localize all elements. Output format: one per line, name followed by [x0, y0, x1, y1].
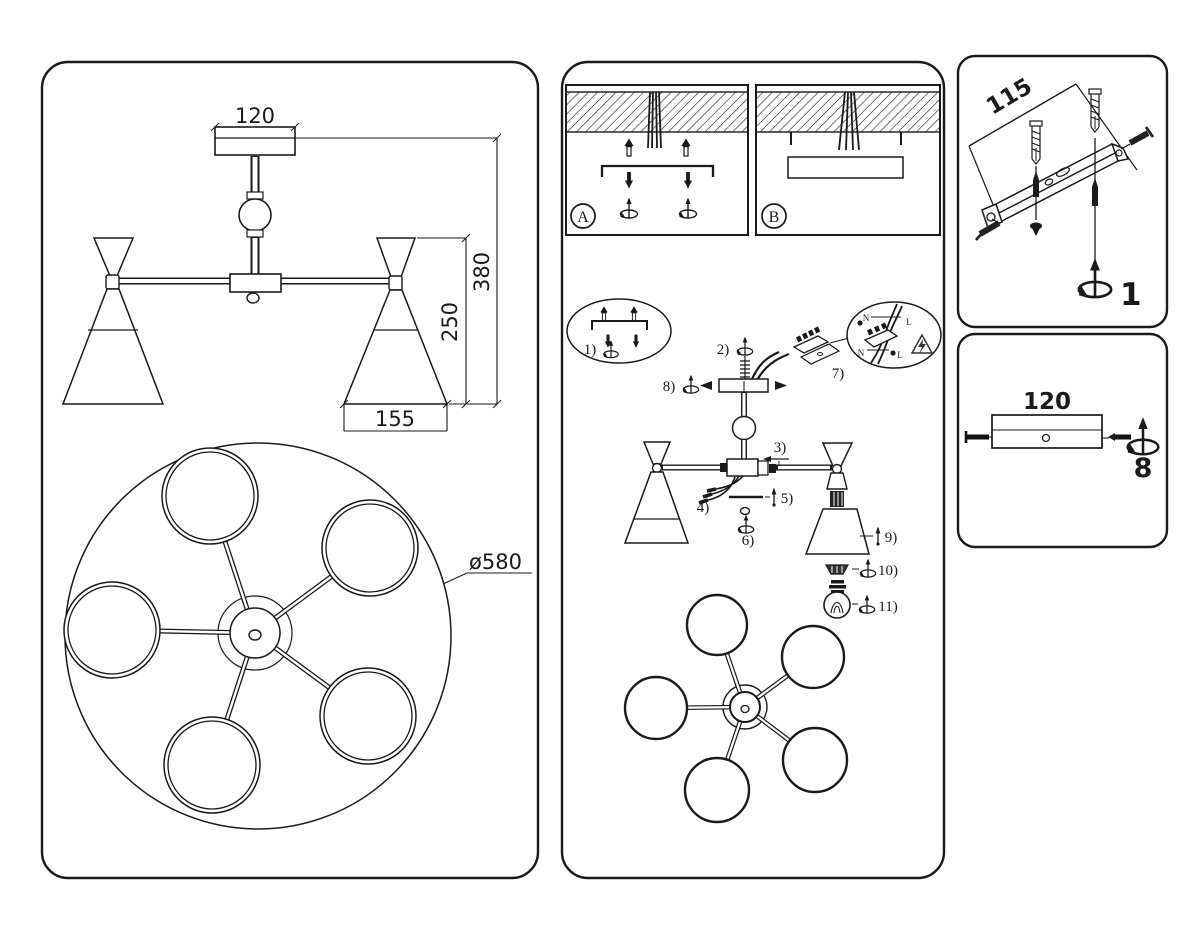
finial	[741, 508, 750, 515]
canopy-dim-label: 120	[1023, 389, 1071, 415]
step-8-label: 8)	[663, 379, 676, 395]
dim-width-label: 120	[235, 104, 275, 128]
bracket-step-label: 1	[1120, 277, 1142, 313]
central-hub	[727, 459, 758, 476]
middle-panel: A B 1)	[562, 62, 944, 878]
central-hub	[230, 274, 281, 292]
terminal-l-bottom-label: L	[897, 350, 903, 360]
label-b: B	[769, 209, 780, 226]
dim-diameter-label: ø580	[469, 550, 522, 574]
canopy-panel: 120 8	[958, 334, 1167, 547]
left-panel: 120 380 250 155	[42, 62, 538, 878]
instruction-sheet: 120 380 250 155	[0, 0, 1200, 933]
step-1-label: 1)	[584, 342, 597, 358]
ceiling-plate	[215, 127, 295, 155]
canopy-drawing	[992, 415, 1102, 448]
label-a: A	[577, 209, 589, 226]
canopy-b	[788, 157, 903, 178]
step-5-label: 5)	[781, 491, 794, 507]
ball-joint	[239, 199, 271, 231]
mounting-option-a: A	[566, 85, 748, 235]
step-3-label: 3)	[774, 440, 787, 456]
arm-connector	[758, 461, 768, 475]
mounting-option-b: B	[756, 85, 940, 235]
hub-finial	[247, 293, 259, 303]
step-11-label: 11)	[878, 599, 897, 615]
canopy-step-label: 8	[1134, 453, 1153, 484]
step-10-label: 10)	[878, 563, 898, 579]
instruction-drawing: 120 380 250 155	[0, 0, 1200, 933]
step-9-label: 9)	[885, 530, 898, 546]
ball-joint	[733, 417, 756, 440]
dim-shade-height-label: 250	[438, 302, 462, 342]
step-2-label: 2)	[717, 342, 730, 358]
terminal-n-top-label: N	[863, 313, 870, 323]
dim-shade-width-label: 155	[375, 407, 415, 431]
bracket-panel: 115	[958, 56, 1167, 327]
terminal-l-top-label: L	[906, 317, 912, 327]
step-7-label: 7)	[832, 366, 845, 382]
left-panel-border	[42, 62, 538, 878]
wiring-detail-bubble: N L N L	[847, 302, 941, 368]
step-6-label: 6)	[742, 533, 755, 549]
step-4-label: 4)	[697, 500, 710, 516]
dim-height-label: 380	[470, 252, 494, 292]
terminal-n-bottom-label: N	[858, 348, 865, 358]
